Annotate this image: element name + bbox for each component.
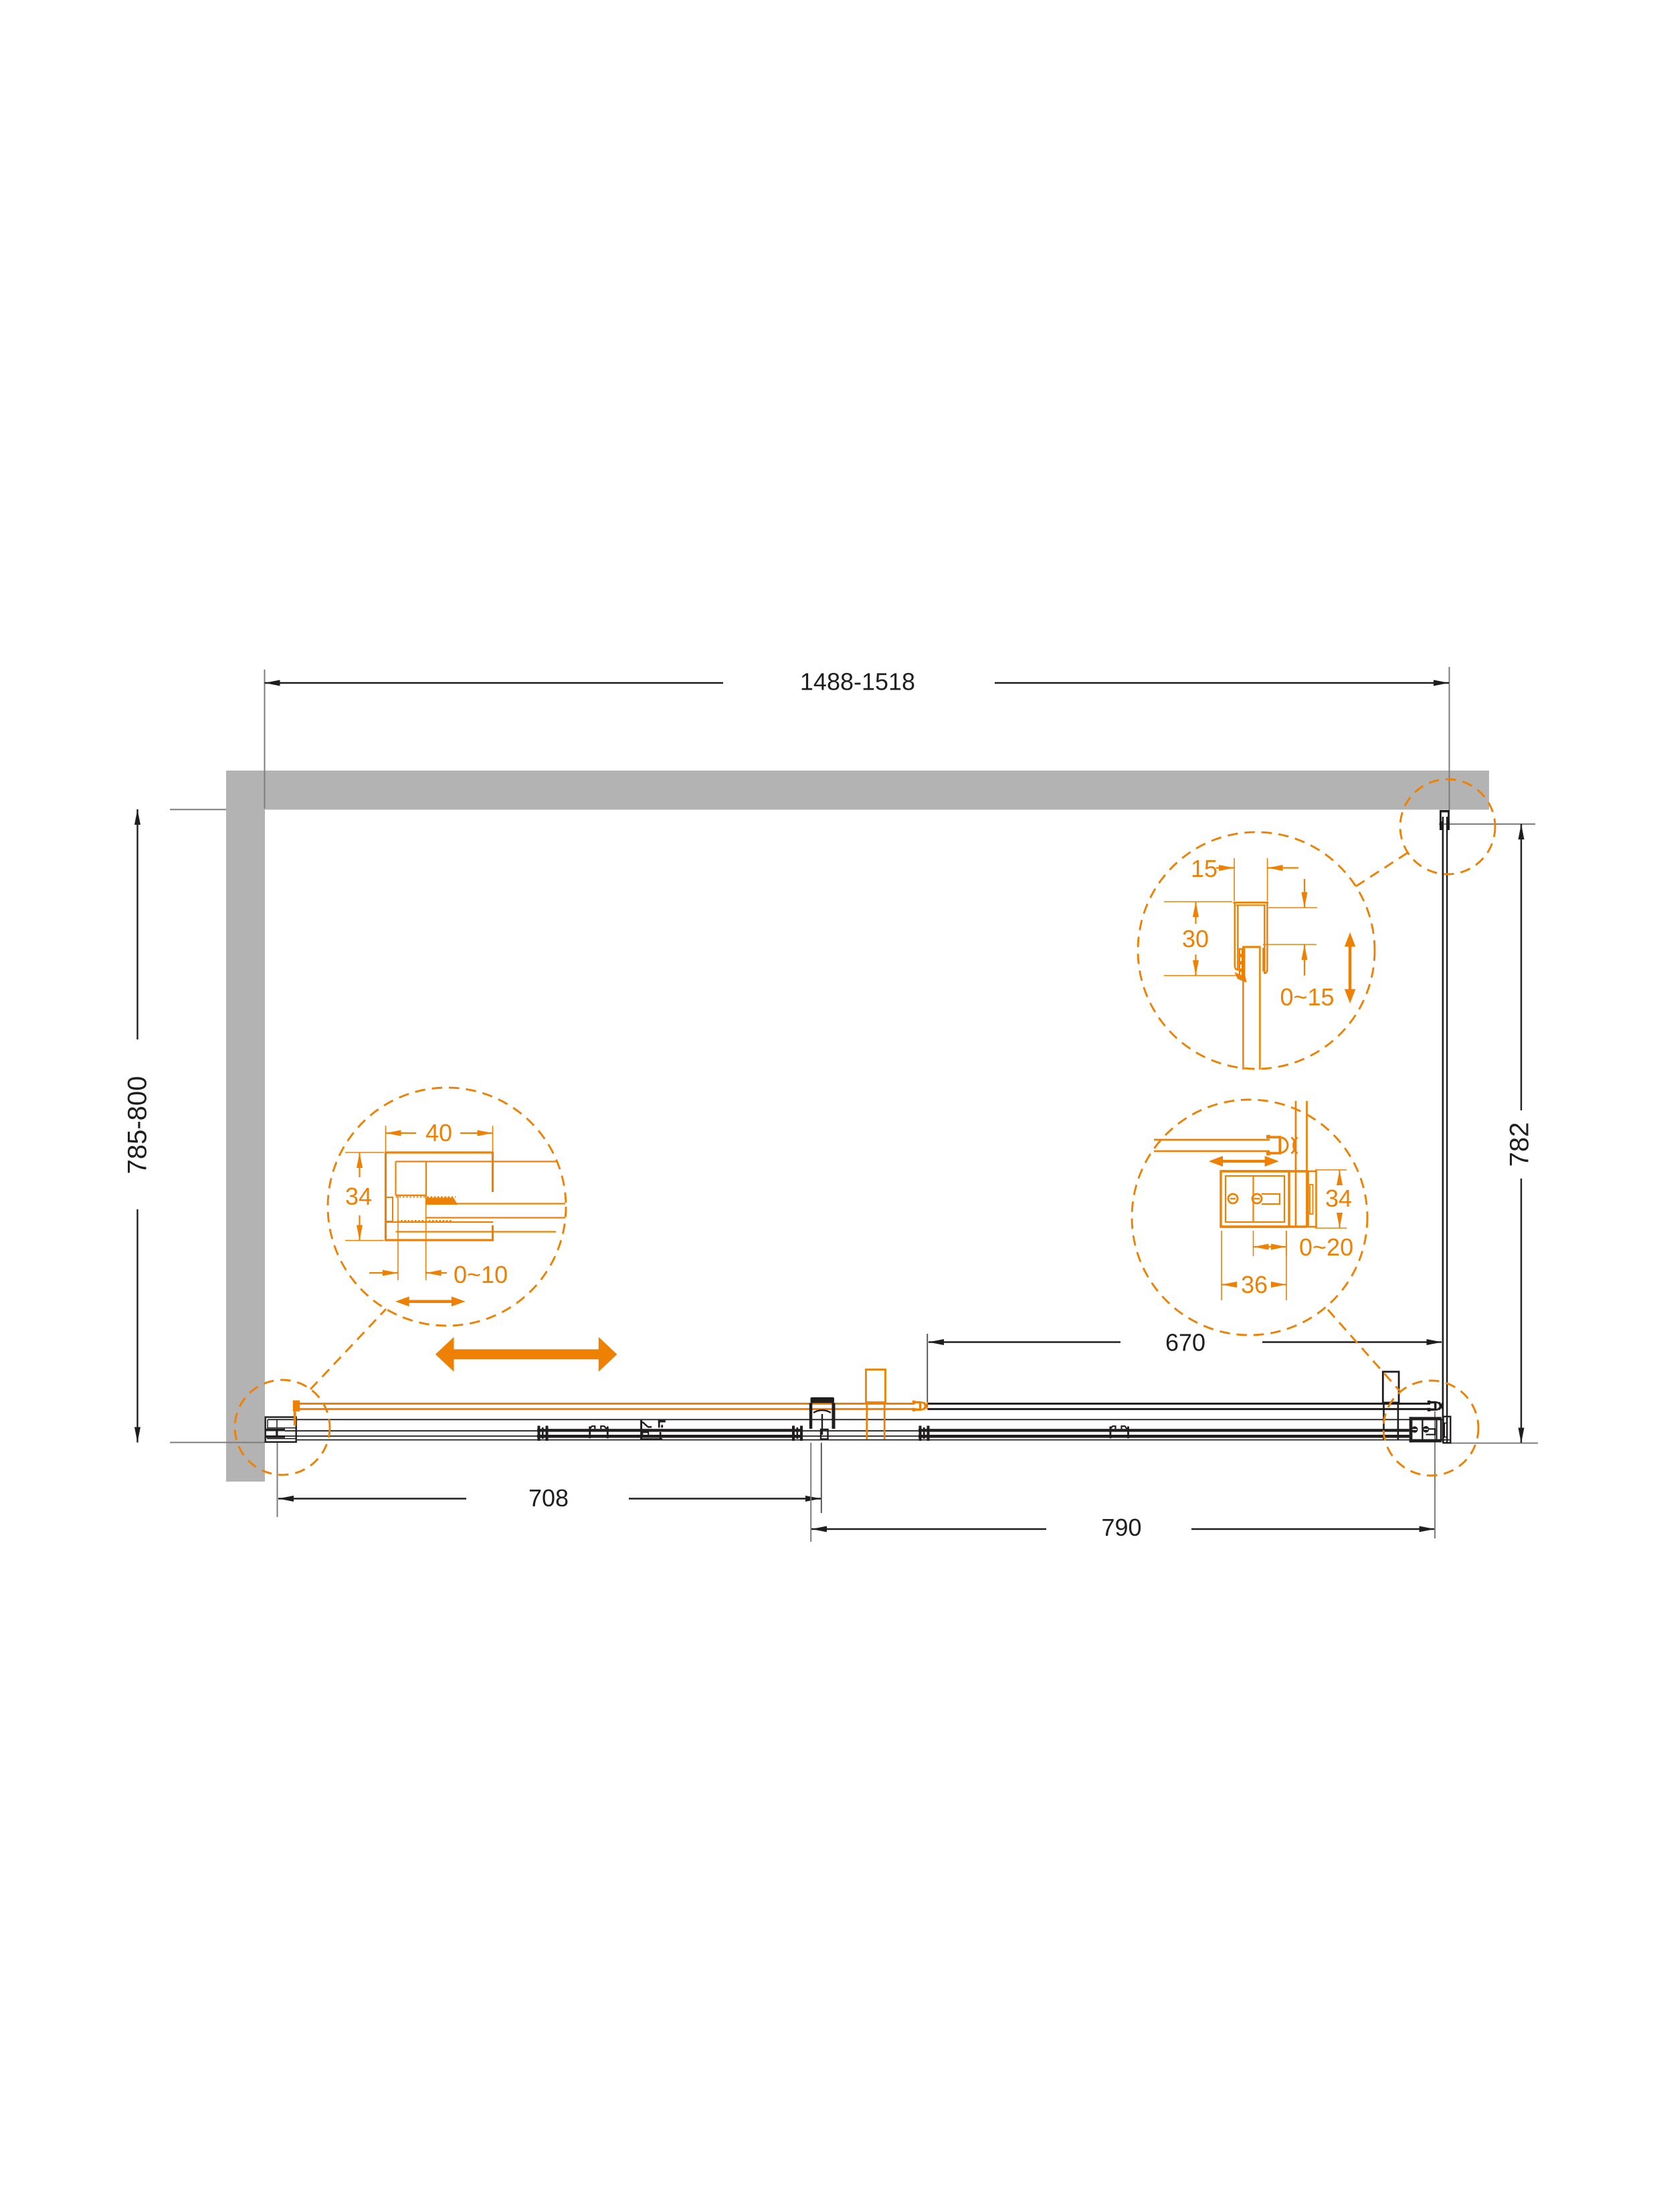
svg-text:40: 40	[425, 1119, 452, 1146]
svg-text:34: 34	[345, 1183, 372, 1210]
svg-text:1488-1518: 1488-1518	[800, 668, 915, 696]
svg-text:785-800: 785-800	[123, 1076, 153, 1175]
svg-text:30: 30	[1182, 925, 1209, 952]
svg-text:0~20: 0~20	[1299, 1233, 1353, 1261]
svg-text:15: 15	[1191, 855, 1217, 882]
svg-text:36: 36	[1241, 1271, 1268, 1298]
svg-text:790: 790	[1101, 1514, 1141, 1541]
svg-text:782: 782	[1505, 1122, 1535, 1167]
svg-text:670: 670	[1165, 1329, 1205, 1356]
svg-text:34: 34	[1325, 1185, 1352, 1212]
svg-text:708: 708	[528, 1484, 569, 1512]
svg-text:0~15: 0~15	[1280, 983, 1334, 1011]
svg-text:0~10: 0~10	[454, 1261, 508, 1288]
